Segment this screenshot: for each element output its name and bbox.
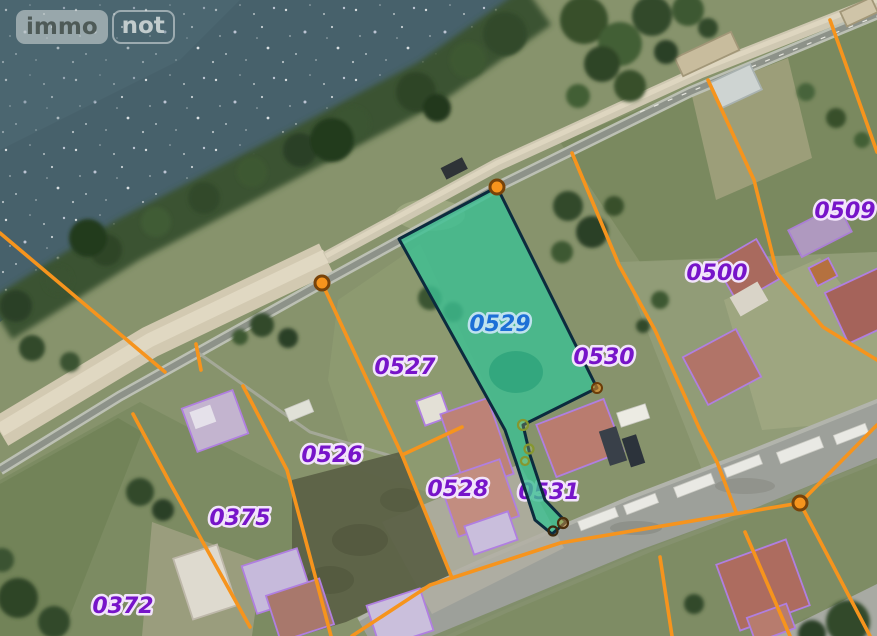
vertex-ring <box>518 420 528 430</box>
vertex-ring <box>558 518 568 528</box>
vertex-dot <box>315 276 329 290</box>
vertex-dot <box>490 180 504 194</box>
vertex-ring <box>521 457 529 465</box>
parcel-label-0526[interactable]: 0526 <box>301 443 362 468</box>
logo-immo-pill: immo <box>16 10 108 44</box>
parcel-label-0375[interactable]: 0375 <box>209 506 270 531</box>
cadastral-aerial-map[interactable]: 0531 0529 0527 0530 05 <box>0 0 877 636</box>
parcel-label-0529[interactable]: 0529 <box>469 312 530 337</box>
vertex-dot <box>793 496 807 510</box>
parcel-label-0528[interactable]: 0528 <box>427 477 488 502</box>
parcel-label-0527[interactable]: 0527 <box>374 355 436 380</box>
parcel-label-0500[interactable]: 0500 <box>686 261 747 286</box>
parcel-label-0530[interactable]: 0530 <box>573 345 634 370</box>
logo-not-pill: not <box>112 10 175 44</box>
parcel-label-0372[interactable]: 0372 <box>92 594 153 619</box>
parcel-label-0509[interactable]: 0509 <box>814 199 875 224</box>
map-viewport[interactable]: 0531 0529 0527 0530 05 <box>0 0 877 636</box>
vertex-ring <box>525 445 534 454</box>
immonot-logo: immo not <box>16 10 175 44</box>
vertex-ring <box>592 383 602 393</box>
